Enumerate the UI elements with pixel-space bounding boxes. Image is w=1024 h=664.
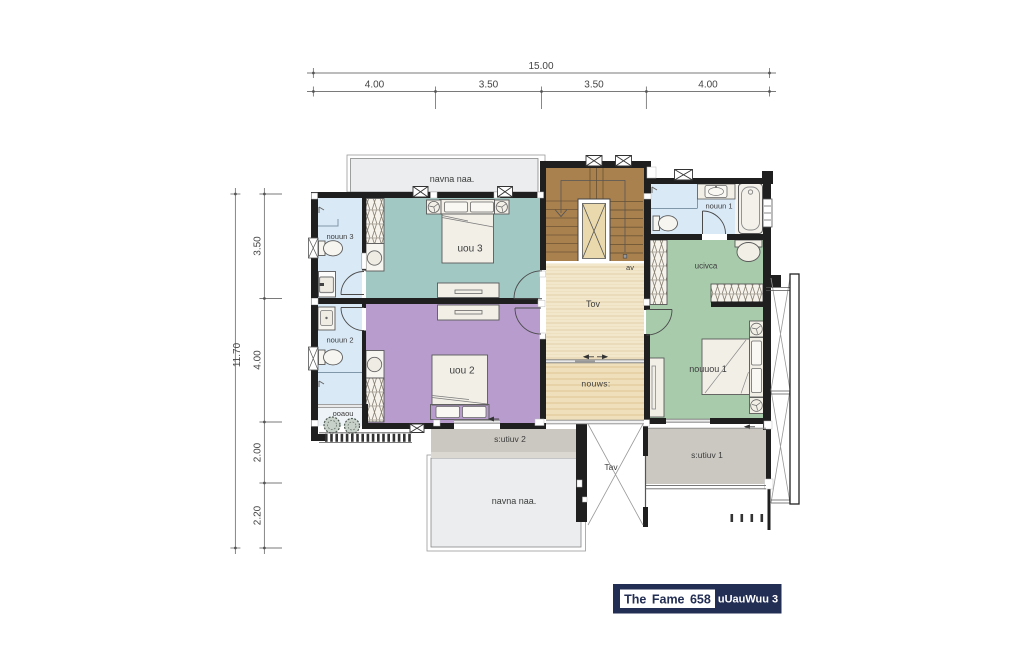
svg-text:uou 2: uou 2 [449, 366, 474, 377]
svg-text:11.70: 11.70 [232, 342, 243, 367]
svg-text:The Fame 658: The Fame 658 [624, 593, 711, 607]
svg-text:nouun 2: nouun 2 [326, 336, 353, 345]
svg-text:uou 3: uou 3 [457, 244, 482, 255]
svg-text:2.00: 2.00 [252, 442, 263, 462]
svg-text:3.50: 3.50 [584, 80, 604, 91]
svg-text:s:utiuv 2: s:utiuv 2 [494, 434, 526, 444]
svg-text:navna naa.: navna naa. [492, 496, 537, 506]
svg-text:15.00: 15.00 [528, 61, 553, 72]
svg-text:3.50: 3.50 [479, 80, 499, 91]
svg-text:av: av [626, 263, 634, 272]
svg-text:ucivca: ucivca [695, 262, 718, 271]
svg-text:nouuou 1: nouuou 1 [689, 364, 727, 374]
svg-text:nouun 1: nouun 1 [705, 202, 732, 211]
svg-text:s:utiuv 1: s:utiuv 1 [691, 450, 723, 460]
svg-text:2.20: 2.20 [252, 505, 263, 525]
svg-text:nouun 3: nouun 3 [326, 232, 353, 241]
svg-text:4.00: 4.00 [698, 80, 718, 91]
svg-text:uUauWuu 3: uUauWuu 3 [718, 594, 778, 606]
svg-text:nouws:: nouws: [581, 379, 610, 389]
svg-text:Tav: Tav [604, 462, 618, 472]
svg-text:ooaou: ooaou [333, 409, 354, 418]
svg-text:4.00: 4.00 [365, 80, 385, 91]
svg-text:navna naa.: navna naa. [430, 174, 475, 184]
svg-text:Tov: Tov [586, 299, 601, 309]
svg-text:3.50: 3.50 [252, 236, 263, 256]
svg-text:4.00: 4.00 [252, 350, 263, 370]
